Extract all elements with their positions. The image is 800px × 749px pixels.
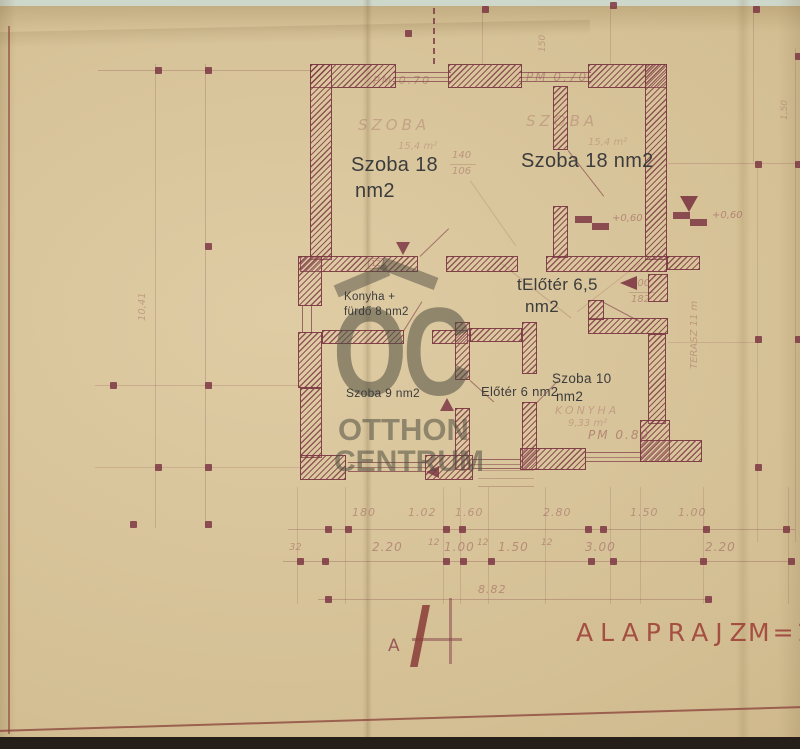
grid-dot [155,464,162,471]
grid-dot [460,558,467,565]
dim-line-total [318,599,712,600]
wall-left-lower [300,388,322,458]
wall-under-entry-left [470,328,522,342]
grid-vline-155 [155,64,156,528]
grid-dot [788,558,795,565]
terrace-hline-bottom [668,342,760,343]
wall-partition-top-b [553,206,568,258]
room-label-line: tElőtér 6,5 [517,274,598,296]
section-dash-top [433,8,435,64]
konyha-area-faded: 9,33 m² [568,418,607,429]
grid-dot [755,464,762,471]
plan-title: ALAPRAJZ [576,618,754,647]
room-label-eloter-top: tElőtér 6,5 nm2 [517,274,598,318]
area-right-faded: 15,4 m² [588,137,627,148]
dim-row1-2: 1.60 [455,506,484,519]
room-label-line: Szoba 18 [351,152,438,178]
grid-dot [700,558,707,565]
construction-diag-3 [469,180,516,246]
room-label-szoba9: Szoba 9 nm2 [346,386,420,402]
dim-row2-8: 2.20 [705,540,736,554]
wall-right-lower [648,334,666,424]
grid-vline-205 [205,64,206,528]
watermark-centrum: CENTRUM [334,446,466,478]
grid-dot [610,558,617,565]
dim-row2-2: 12 [428,538,439,548]
watermark-otthon: OTTHON [338,414,458,447]
window-kitchen-left [302,306,312,332]
dim-ext-10 [788,487,789,604]
room-label-line: Szoba 10 [552,370,611,388]
grid-dot [795,336,800,343]
dim-row2-4: 12 [477,538,488,548]
dim-150-right-vertical: 1,50 [780,100,790,120]
dim-row2-7: 3.00 [585,540,616,554]
grid-dot [600,526,607,533]
steps-line-2 [478,478,534,479]
grid-hline-385 [95,385,300,386]
door-size-a-top: 140 [452,150,471,161]
grid-dot [443,526,450,533]
grid-dot [205,464,212,471]
room-label-eloter-bottom: Előtér 6 nm2 [481,384,558,401]
door-size-b-rule [629,292,655,293]
plan-scale: M=1 [748,618,800,647]
dim-row1-3: 2.80 [543,506,572,519]
wall-bottom-2 [520,448,586,470]
dim-ext-8 [640,487,641,604]
grid-dot [705,596,712,603]
room-label-szoba18-left: Szoba 18 nm2 [351,152,438,204]
door-size-b-bottom: 182 [631,294,650,305]
grid-dot [297,558,304,565]
grid-dot [205,521,212,528]
dim-150-vertical: 150 [538,35,548,52]
grid-dot [345,526,352,533]
grid-dot [205,67,212,74]
grid-hline-top-left [98,70,310,71]
scan-bottom-strip [0,737,800,749]
grid-dot [110,382,117,389]
grid-vline-482 [482,10,483,64]
terrace-hline-top [668,163,798,164]
section-letter: A [388,636,400,656]
grid-vline-753 [753,10,754,162]
door-size-a-rule [450,164,476,165]
pm-070-right-text: PM 0.70 [526,70,588,84]
dim-row2-0: 32 [289,542,302,553]
plus-060-b-text: +0,60 [712,210,743,221]
grid-dot [130,521,137,528]
room-label-line: Konyha + [344,290,409,305]
wall-left-upper [310,64,332,260]
grid-dot [753,6,760,13]
grid-vline-757 [757,160,758,542]
dim-row1-4: 1.50 [630,506,659,519]
szoba-left-faded: SZOBA [358,116,430,134]
room-label-konyha: Konyha + fürdő 8 nm2 [344,290,409,320]
room-label-line: nm2 [351,178,438,204]
room-label-szoba10: Szoba 10 nm2 [552,370,611,405]
level-symbol-b [673,212,707,227]
pm-080-text: PM 0.80 [588,428,650,442]
dim-row1-0: 180 [352,506,376,519]
grid-dot [783,526,790,533]
dim-row1-5: 1.00 [678,506,707,519]
marker-arrow-mid [396,242,410,255]
grid-dot [585,526,592,533]
wall-mid-3 [546,256,667,272]
room-label-line: nm2 [552,388,611,406]
sheet-border-left [8,26,10,734]
konyha-faded: KONYHA [555,404,619,417]
floorplan-scan: PM 0.70 PM 0.70 PM 0.80 SZOBA 15,4 m² SZ… [0,0,800,749]
level-symbol-a [575,216,609,231]
dim-ext-9 [703,487,704,604]
grid-dot [405,30,412,37]
section-marker-vline [449,598,452,664]
wall-top-2 [448,64,522,88]
grid-dot [610,2,617,9]
grid-dot [205,243,212,250]
plus-060-a-text: +0,60 [612,213,643,224]
wall-porch-stub [667,256,700,270]
dim-row2-3: 1.00 [444,540,475,554]
dim-row1-1: 1.02 [408,506,437,519]
dim-line-row2 [283,561,795,562]
room-label-szoba18-right: Szoba 18 nm2 [521,148,654,174]
dim-total: 8.82 [478,583,507,596]
room-label-line: nm2 [517,296,598,318]
grid-dot [482,6,489,13]
dim-ext-2 [345,487,346,604]
wall-right-mid [648,274,668,302]
sheet-border-bottom [0,706,800,732]
grid-dot [488,558,495,565]
szoba-right-faded: SZOBA [526,112,598,130]
grid-dot [703,526,710,533]
grid-dot [325,526,332,533]
steps-line-1 [478,470,534,471]
dim-row2-6: 12 [541,538,552,548]
wall-corner-bottom-right-h [640,440,702,462]
level-arrow-right [680,196,698,212]
door-size-b-top: 100 [631,278,650,289]
grid-dot [588,558,595,565]
dim-1041-vertical: 10,41 [137,292,148,321]
grid-dot [325,596,332,603]
area-left-faded: 15,4 m² [398,141,437,152]
grid-dot [443,558,450,565]
pm-070-left-text: PM 0.70 [373,74,431,87]
grid-dot [755,336,762,343]
grid-dot [205,382,212,389]
door-size-a-bottom: 106 [452,166,471,177]
terasz-text: TERASZ 11 m [689,301,700,369]
dim-row2-5: 1.50 [498,540,529,554]
door-swing-kitchen [420,228,450,257]
room-label-line: fürdő 8 nm2 [344,305,409,320]
grid-dot [795,53,800,60]
grid-dot [322,558,329,565]
grid-dot [459,526,466,533]
grid-dot [155,67,162,74]
grid-hline-467 [95,467,300,468]
grid-vline-610 [610,6,611,64]
grid-dot [755,161,762,168]
dim-line-row1 [288,529,795,530]
window-bottom-room4 [586,452,642,462]
wall-kitchen-left-a [298,256,322,306]
wall-hall-room4-a [522,322,537,374]
wall-under-entry-right [588,318,668,334]
wall-kitchen-left-b [298,332,322,388]
section-marker-flag [410,605,430,667]
dim-row2-1: 2.20 [372,540,403,554]
steps-line-3 [478,486,534,487]
grid-vline-795 [795,48,796,542]
grid-dot [795,161,800,168]
